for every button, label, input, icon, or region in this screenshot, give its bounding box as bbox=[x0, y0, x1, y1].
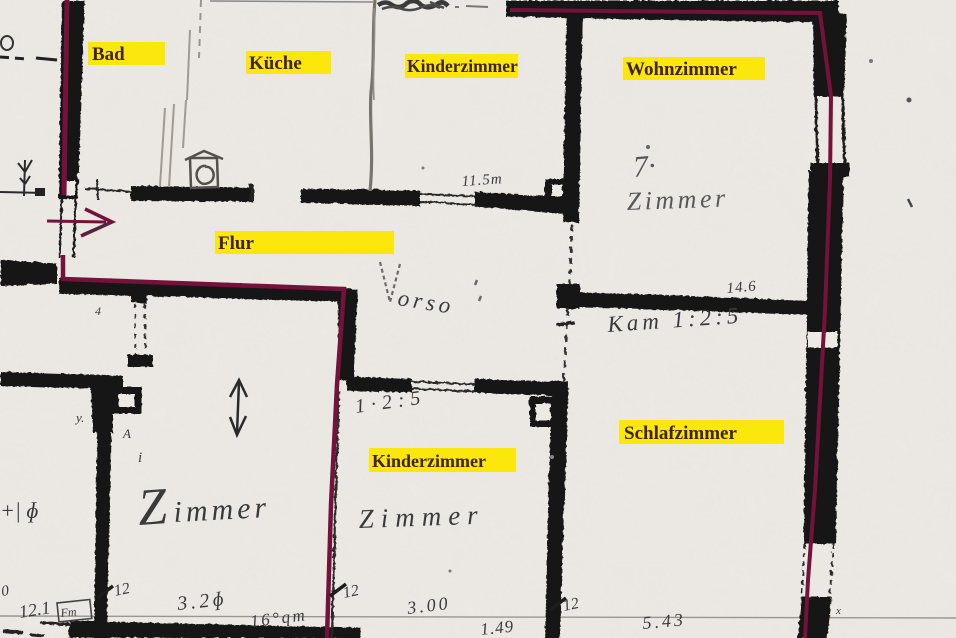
svg-text:Z: Z bbox=[136, 478, 170, 537]
svg-text:1.49: 1.49 bbox=[479, 617, 515, 638]
svg-text:Wohnzimmer: Wohnzimmer bbox=[626, 59, 737, 80]
svg-text:Zimmer: Zimmer bbox=[626, 183, 729, 216]
svg-text:i: i bbox=[138, 450, 142, 466]
svg-text:Flur: Flur bbox=[218, 233, 254, 254]
svg-text:5.43: 5.43 bbox=[642, 609, 687, 633]
svg-text:4: 4 bbox=[95, 304, 101, 318]
svg-text:14.6: 14.6 bbox=[726, 278, 758, 297]
svg-text:Schlafzimmer: Schlafzimmer bbox=[624, 423, 737, 444]
svg-text:Kinderzimmer: Kinderzimmer bbox=[372, 451, 486, 471]
svg-text:x: x bbox=[835, 605, 841, 617]
svg-text:A: A bbox=[122, 426, 131, 441]
svg-text:11.5m: 11.5m bbox=[461, 171, 503, 190]
svg-text:immer: immer bbox=[173, 491, 271, 529]
svg-text:y.: y. bbox=[74, 410, 84, 425]
svg-text:+| ɸ: +| ɸ bbox=[0, 498, 38, 523]
svg-text:Bad: Bad bbox=[92, 44, 125, 65]
svg-text:Küche: Küche bbox=[249, 53, 302, 74]
svg-text:Kinderzimmer: Kinderzimmer bbox=[407, 56, 518, 76]
svg-text:Zimmer: Zimmer bbox=[358, 500, 485, 534]
svg-text:Fm: Fm bbox=[59, 604, 78, 620]
svg-text:7·: 7· bbox=[632, 149, 657, 184]
